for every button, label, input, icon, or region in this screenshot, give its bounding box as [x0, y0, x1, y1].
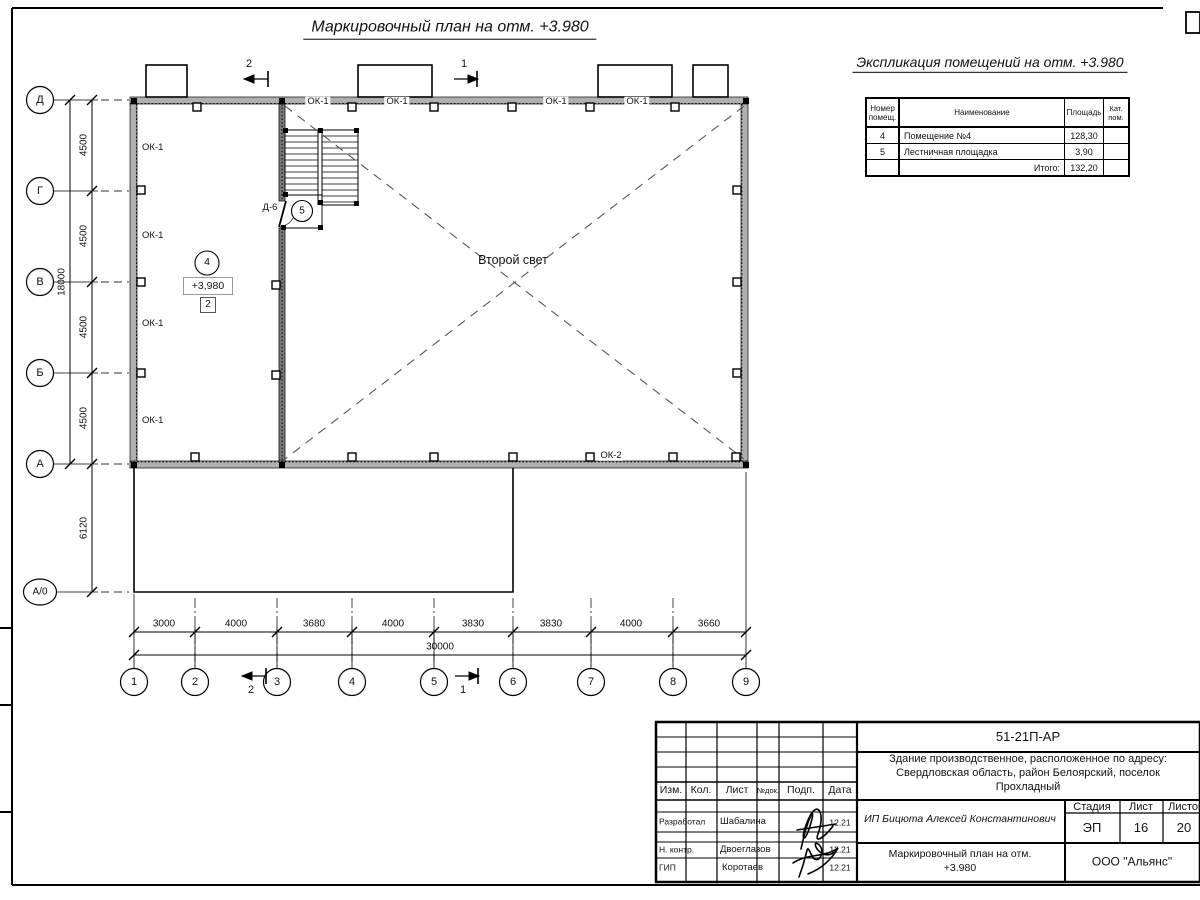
stage-value: ЭП	[1083, 821, 1102, 835]
room-name: Лестничная площадка	[899, 144, 1065, 160]
window-label-ok1: ОК-1	[624, 97, 649, 107]
window-label-ok1: ОК-1	[543, 97, 568, 107]
drawing-title: +3.980	[944, 863, 976, 875]
dim-value: 3830	[462, 619, 484, 630]
explication-table: Номер помещ. Наименование Площадь Кат. п…	[865, 97, 1130, 177]
total-label: Итого:	[899, 160, 1065, 177]
axis-col-label: 1	[131, 676, 137, 688]
window-label-ok1: ОК-1	[305, 97, 330, 107]
dim-value: 3660	[698, 619, 720, 630]
dim-value: 6120	[79, 517, 90, 539]
sheets-label: Листов	[1168, 801, 1200, 813]
tb-col-data: Дата	[828, 785, 851, 797]
tb-date: 12.21	[829, 863, 850, 872]
window-label-ok1: ОК-1	[140, 231, 165, 241]
window-label-ok1: ОК-1	[140, 143, 165, 153]
dim-total: 18000	[57, 268, 68, 296]
axis-row-label: А	[36, 458, 43, 470]
tb-name: Шабалина	[720, 817, 766, 827]
table-row: 5 Лестничная площадка 3,90	[866, 144, 1129, 160]
room-number: 5	[866, 144, 899, 160]
dim-total: 30000	[426, 642, 454, 653]
door-label: Д-6	[261, 203, 280, 213]
room-area: 128,30	[1065, 127, 1104, 144]
room-cat	[1104, 144, 1130, 160]
axis-row-label: Г	[37, 185, 43, 197]
void-diagonals	[285, 106, 744, 459]
sheets-total: 20	[1177, 821, 1191, 835]
axis-row-label: А/0	[32, 587, 47, 598]
dim-value: 4000	[382, 619, 404, 630]
room-5-number: 5	[299, 206, 305, 217]
axis-col-label: 3	[274, 676, 280, 688]
dim-value: 4500	[79, 407, 90, 429]
total-value: 132,20	[1065, 160, 1104, 177]
zone-mark: 2	[200, 297, 216, 313]
section-1-label: 1	[460, 684, 466, 696]
axis-col-label: 8	[670, 676, 676, 688]
axis-col-label: 6	[510, 676, 516, 688]
col-header: Площадь	[1065, 98, 1104, 127]
axis-col-label: 7	[588, 676, 594, 688]
window-label-ok1: ОК-1	[384, 97, 409, 107]
client-name: ИП Бицюта Алексей Константинович	[864, 814, 1056, 826]
room-4-number: 4	[204, 257, 210, 269]
explication-title: Экспликация помещений на отм. +3.980	[852, 55, 1127, 73]
elevation-mark: +3,980	[183, 277, 233, 295]
tb-date: 12.21	[829, 845, 850, 854]
axis-row-label: Б	[36, 367, 43, 379]
room-area: 3,90	[1065, 144, 1104, 160]
section-2-label: 2	[248, 684, 254, 696]
table-row: 4 Помещение №4 128,30	[866, 127, 1129, 144]
axis-col-label: 2	[192, 676, 198, 688]
tb-name: Коротаев	[722, 863, 763, 873]
axis-row-label: В	[36, 276, 43, 288]
project-address: Прохладный	[996, 781, 1061, 793]
tb-col-ndok: №док.	[757, 787, 779, 795]
drawing-sheet: Маркировочный план на отм. +3.980 Экспли…	[0, 0, 1200, 900]
section-2-label: 2	[246, 58, 252, 70]
lower-extension	[134, 468, 513, 592]
tb-col-podp: Подп.	[787, 785, 815, 797]
room-cat	[1104, 127, 1130, 144]
window-label-ok2: ОК-2	[598, 451, 623, 461]
tb-col-izm: Изм.	[660, 785, 683, 797]
axis-col-label: 5	[431, 676, 437, 688]
window-label-ok1: ОК-1	[140, 416, 165, 426]
dim-value: 3830	[540, 619, 562, 630]
project-address: Здание производственное, расположенное п…	[889, 753, 1167, 765]
tb-role: Разработал	[659, 817, 705, 826]
drawing-title: Маркировочный план на отм.	[889, 849, 1032, 861]
doc-number: 51-21П-АР	[996, 730, 1060, 744]
dim-value: 4000	[620, 619, 642, 630]
dim-value: 4500	[79, 316, 90, 338]
roof-boxes	[146, 65, 728, 97]
table-total-row: Итого: 132,20	[866, 160, 1129, 177]
col-header: Наименование	[899, 98, 1065, 127]
plan-title: Маркировочный план на отм. +3.980	[303, 19, 596, 40]
void-label: Второй свет	[478, 254, 548, 268]
section-1-label: 1	[461, 58, 467, 70]
tb-col-kol: Кол.	[691, 785, 712, 797]
dim-value: 4500	[79, 225, 90, 247]
col-header: Номер помещ.	[866, 98, 899, 127]
sheet-number: 16	[1134, 821, 1148, 835]
tb-role: ГИП	[659, 863, 676, 872]
room-name: Помещение №4	[899, 127, 1065, 144]
col-header: Кат. пом.	[1104, 98, 1130, 127]
dim-value: 4000	[225, 619, 247, 630]
sheet-label: Лист	[1129, 801, 1153, 813]
tb-role: Н. контр.	[659, 845, 694, 854]
company-name: ООО "Альянс"	[1092, 855, 1172, 868]
axis-row-label: Д	[36, 94, 43, 106]
tb-date: 12.21	[829, 818, 850, 827]
axis-col-label: 4	[349, 676, 355, 688]
tb-col-list: Лист	[726, 785, 749, 797]
dim-value: 3000	[153, 619, 175, 630]
tb-name: Двоеглазов	[720, 845, 771, 855]
window-label-ok1: ОК-1	[140, 319, 165, 329]
project-address: Свердловская область, район Белоярский, …	[896, 767, 1160, 779]
axis-col-label: 9	[743, 676, 749, 688]
stage-label: Стадия	[1073, 801, 1111, 813]
dimension-lines	[70, 100, 746, 655]
dim-value: 3680	[303, 619, 325, 630]
room-number: 4	[866, 127, 899, 144]
dim-value: 4500	[79, 134, 90, 156]
